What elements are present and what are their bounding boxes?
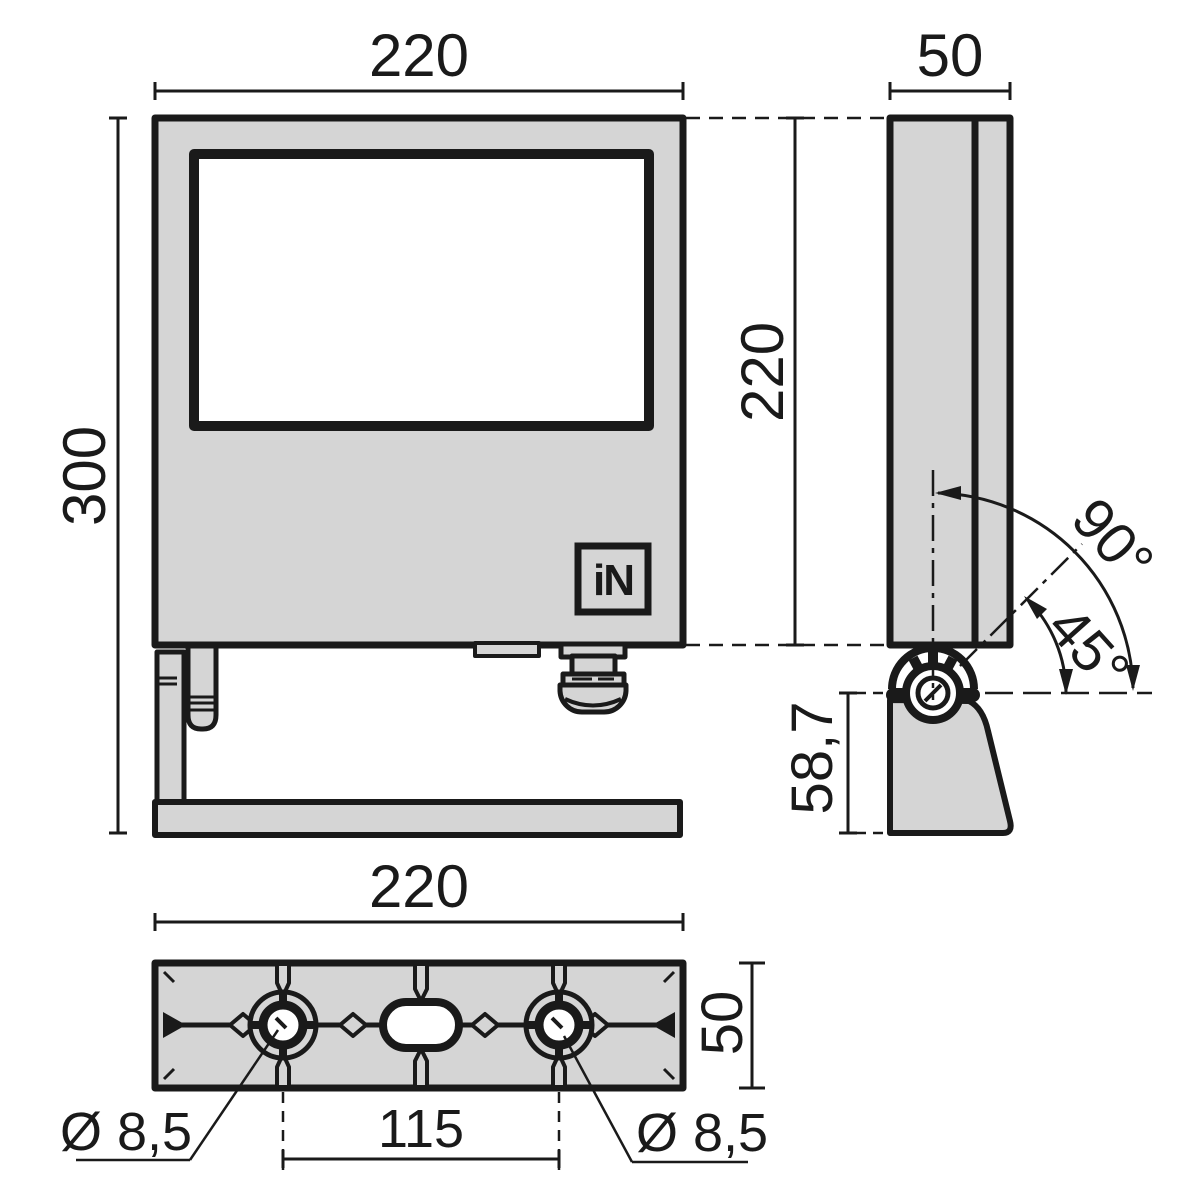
dim-base-depth: 50	[690, 963, 765, 1088]
brand-logo-text: iN	[593, 556, 633, 605]
gland-dome	[560, 685, 626, 712]
front-lens-window	[194, 154, 649, 426]
dim-front-height-label: 300	[51, 426, 118, 526]
bottom-view	[155, 963, 683, 1088]
cable-gland	[560, 644, 626, 712]
dim-front-height: 300	[51, 118, 127, 833]
dim-hole-spacing: 115	[283, 1092, 559, 1170]
dim-angle-half-label: 45°	[1035, 594, 1142, 703]
hinge-knuckle	[188, 646, 216, 729]
mounting-hole-left	[250, 992, 316, 1058]
mounting-hole-right	[526, 992, 592, 1058]
dim-side-depth-label: 50	[917, 22, 984, 89]
side-view	[890, 118, 1011, 833]
housing-tab	[475, 643, 539, 656]
luminaire-dimension-drawing: iN	[0, 0, 1200, 1200]
dim-base-width: 220	[155, 853, 683, 931]
front-view: iN	[155, 118, 683, 835]
dim-base-depth-label: 50	[690, 991, 755, 1056]
plate-rib	[415, 1049, 427, 1085]
dim-pivot-offset-label: 58,7	[780, 702, 845, 815]
dim-angle-full-label: 90°	[1059, 486, 1166, 595]
bracket-post	[157, 652, 184, 804]
side-body	[890, 118, 1010, 645]
dim-hole-spacing-label: 115	[378, 1099, 464, 1159]
dim-hole-left-label: Ø 8,5	[60, 1102, 192, 1162]
technical-drawing-canvas: iN	[0, 0, 1200, 1200]
dim-front-width: 220	[155, 22, 683, 100]
dim-body-height: 220	[686, 118, 886, 645]
dim-base-width-label: 220	[369, 853, 469, 920]
dim-front-width-label: 220	[369, 22, 469, 89]
plate-rib	[415, 966, 427, 1001]
side-bracket-arm	[890, 700, 1011, 833]
dim-pivot-offset: 58,7	[780, 693, 890, 833]
dim-body-height-label: 220	[729, 322, 796, 422]
dim-hole-right-label: Ø 8,5	[636, 1103, 768, 1163]
arc-45-arrow-top	[1024, 596, 1047, 619]
dim-side-depth: 50	[890, 22, 1010, 100]
center-slot	[383, 1002, 459, 1048]
bracket-base	[155, 802, 680, 835]
